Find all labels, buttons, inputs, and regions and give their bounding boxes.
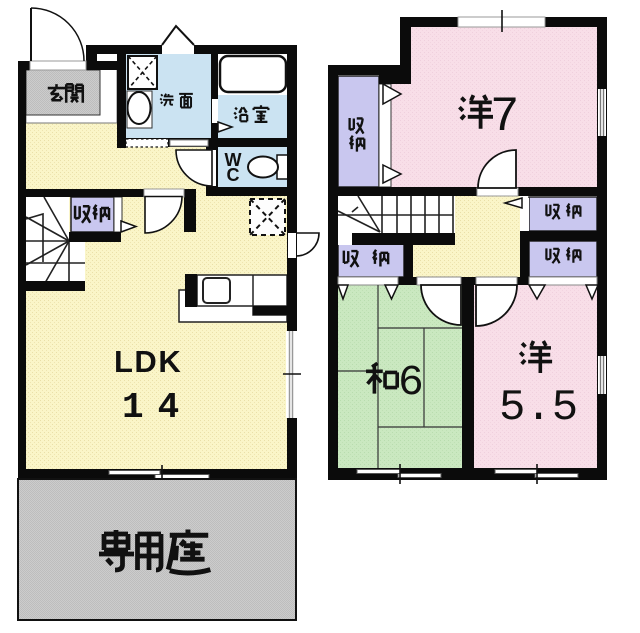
svg-text:C: C [227,165,240,185]
svg-text:6: 6 [398,358,424,407]
svg-text:14: 14 [122,387,193,428]
svg-text:7: 7 [490,89,519,145]
svg-text:LDK: LDK [114,344,182,379]
svg-text:5.5: 5.5 [499,383,578,433]
